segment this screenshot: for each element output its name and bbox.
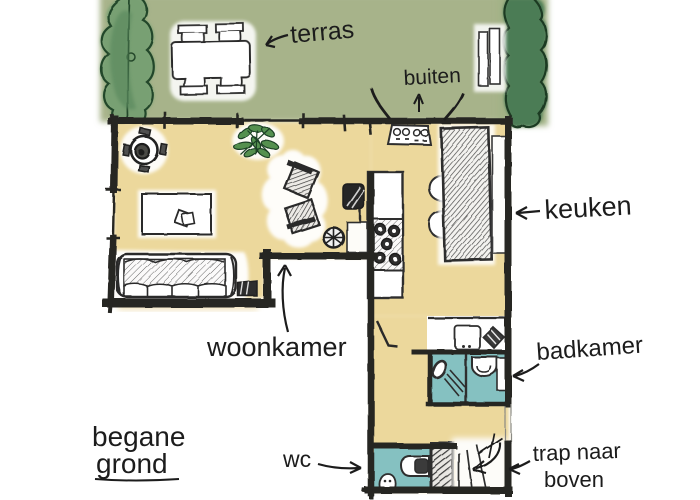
svg-text:woonkamer: woonkamer	[206, 332, 347, 362]
svg-text:keuken: keuken	[544, 190, 633, 225]
svg-text:boven: boven	[544, 467, 604, 492]
svg-text:grond: grond	[96, 448, 168, 479]
svg-text:wc: wc	[282, 446, 311, 472]
svg-text:terras: terras	[289, 16, 355, 49]
svg-text:badkamer: badkamer	[536, 332, 644, 366]
svg-text:buiten: buiten	[403, 64, 461, 90]
svg-text:trap naar: trap naar	[532, 438, 621, 466]
